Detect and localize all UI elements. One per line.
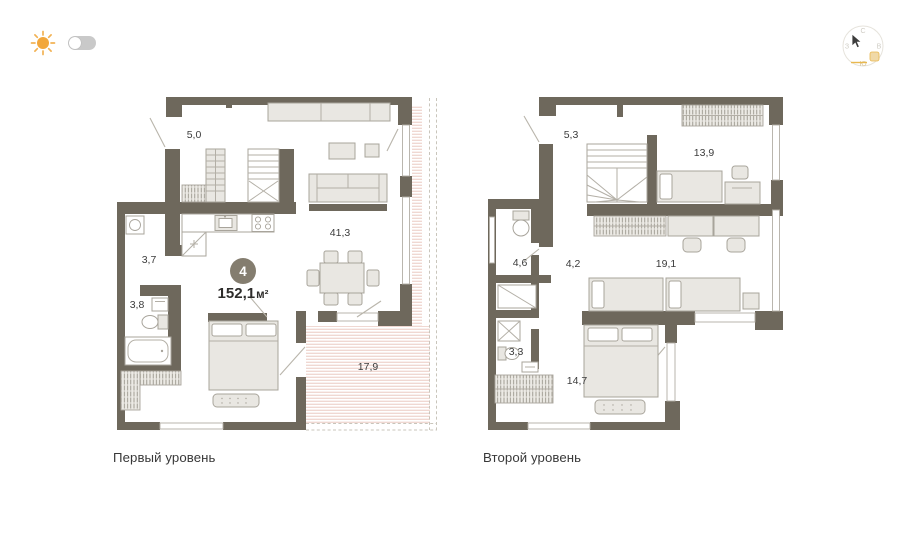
sun-icon — [30, 30, 56, 56]
level-1-caption: Первый уровень — [113, 450, 216, 465]
rooms-count: 4 — [239, 264, 247, 279]
floorplan-page: С В Ю З — [0, 0, 900, 545]
room-area-label: 5,3 — [564, 129, 579, 141]
level-2-stairs — [587, 144, 647, 202]
level-1-wardrobes — [121, 371, 181, 410]
room-area-label: 3,8 — [130, 299, 145, 311]
theme-toggle[interactable] — [68, 36, 96, 50]
level-1-kitchen — [182, 214, 274, 256]
theme-toggle-knob — [69, 37, 81, 49]
level-2-caption: Второй уровень — [483, 450, 581, 465]
room-area-label: 41,3 — [330, 227, 351, 239]
room-area-label: 14,7 — [567, 375, 588, 387]
level-1-stairs — [248, 149, 279, 202]
compass-accent-marker — [870, 52, 879, 61]
compass-north-label: С — [860, 28, 865, 35]
room-area-label: 17,9 — [358, 361, 379, 373]
total-area-text: 152,1м² — [218, 285, 269, 302]
room-area-label: 3,7 — [142, 254, 157, 266]
compass-west-label: З — [845, 44, 849, 51]
room-area-label: 3,3 — [509, 346, 524, 358]
level-1-hall-shelf — [182, 149, 225, 202]
total-area-badge: 4 152,1м² — [218, 258, 269, 302]
room-area-label: 13,9 — [694, 147, 715, 159]
compass-east-label: В — [877, 44, 882, 51]
room-area-label: 19,1 — [656, 258, 677, 270]
level-1-plan: 5,0 3,7 3,8 41,3 17,9 4 152,1м² — [110, 85, 450, 455]
compass[interactable]: С В Ю З — [838, 21, 888, 71]
level-2-bed — [584, 325, 658, 414]
room-area-label: 4,6 — [513, 257, 528, 269]
level-1-bed — [209, 321, 278, 407]
room-area-label: 4,2 — [566, 258, 581, 270]
level-1-bathroom-1-fixtures — [126, 216, 144, 234]
room-area-label: 5,0 — [187, 129, 202, 141]
level-2-plan: 5,3 13,9 4,6 4,2 19,1 3,3 14,7 — [480, 85, 810, 455]
mouse-cursor-icon — [852, 34, 862, 48]
